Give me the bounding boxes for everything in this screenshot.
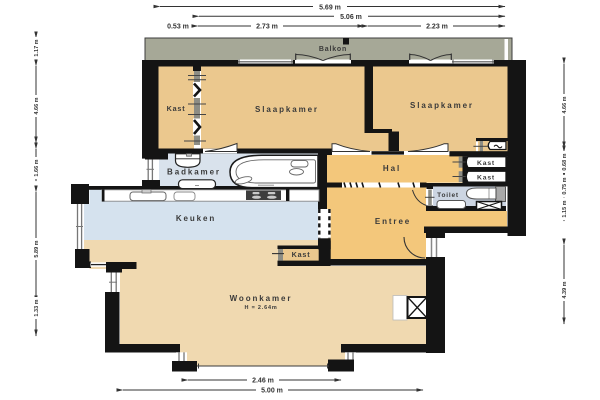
svg-text:1.66 m: 1.66 m bbox=[34, 159, 40, 176]
svg-text:5.00 m: 5.00 m bbox=[261, 387, 283, 394]
svg-text:Entree: Entree bbox=[375, 217, 411, 226]
svg-text:Kast: Kast bbox=[167, 104, 186, 113]
svg-text:Woonkamer: Woonkamer bbox=[230, 294, 293, 303]
svg-text:2.23 m: 2.23 m bbox=[426, 24, 448, 31]
svg-text:Toilet: Toilet bbox=[437, 192, 459, 199]
svg-text:2.73 m: 2.73 m bbox=[256, 24, 278, 31]
svg-text:Keuken: Keuken bbox=[176, 214, 216, 223]
svg-text:5.89 m: 5.89 m bbox=[34, 240, 40, 257]
svg-text:1.15 m: 1.15 m bbox=[562, 200, 568, 217]
svg-text:0.68 m: 0.68 m bbox=[562, 153, 568, 170]
svg-text:1.33 m: 1.33 m bbox=[34, 299, 40, 316]
svg-text:Slaapkamer: Slaapkamer bbox=[410, 101, 474, 110]
svg-text:0.75 m: 0.75 m bbox=[562, 177, 568, 194]
svg-text:Kast: Kast bbox=[477, 160, 495, 167]
svg-text:Badkamer: Badkamer bbox=[167, 168, 221, 177]
svg-text:4.39 m: 4.39 m bbox=[562, 281, 568, 298]
svg-text:0.53 m: 0.53 m bbox=[167, 24, 189, 31]
svg-text:Hal: Hal bbox=[383, 164, 401, 173]
svg-text:4.66 m: 4.66 m bbox=[34, 97, 40, 114]
svg-text:5.69 m: 5.69 m bbox=[319, 4, 341, 11]
svg-text:5.06 m: 5.06 m bbox=[340, 14, 362, 21]
svg-text:2.46 m: 2.46 m bbox=[252, 377, 274, 384]
svg-text:1.17 m: 1.17 m bbox=[34, 39, 40, 56]
svg-text:4.66 m: 4.66 m bbox=[562, 96, 568, 113]
svg-text:Balkon: Balkon bbox=[319, 46, 347, 53]
svg-text:Kast: Kast bbox=[477, 175, 495, 182]
svg-text:Slaapkamer: Slaapkamer bbox=[255, 105, 319, 114]
svg-text:Kast: Kast bbox=[292, 250, 311, 259]
svg-text:H = 2.64m: H = 2.64m bbox=[244, 305, 277, 311]
